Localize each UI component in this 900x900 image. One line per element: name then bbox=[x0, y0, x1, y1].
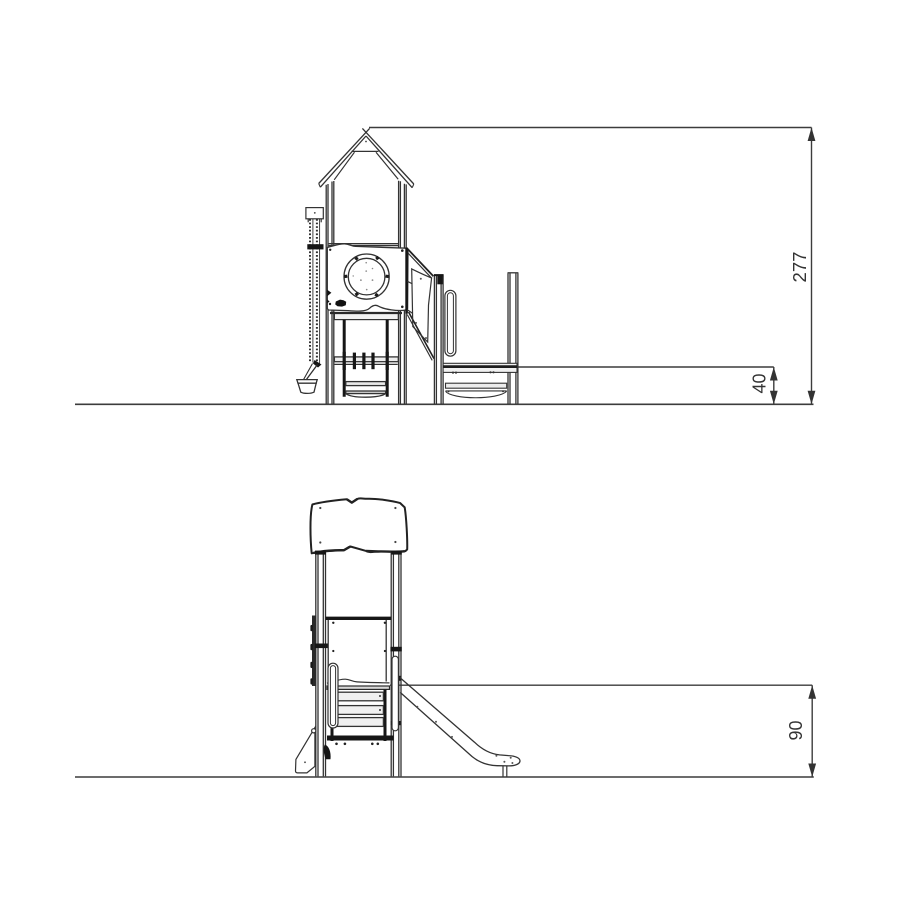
svg-text:90: 90 bbox=[786, 720, 806, 740]
svg-text:40: 40 bbox=[750, 373, 770, 393]
svg-text:277: 277 bbox=[789, 252, 810, 283]
